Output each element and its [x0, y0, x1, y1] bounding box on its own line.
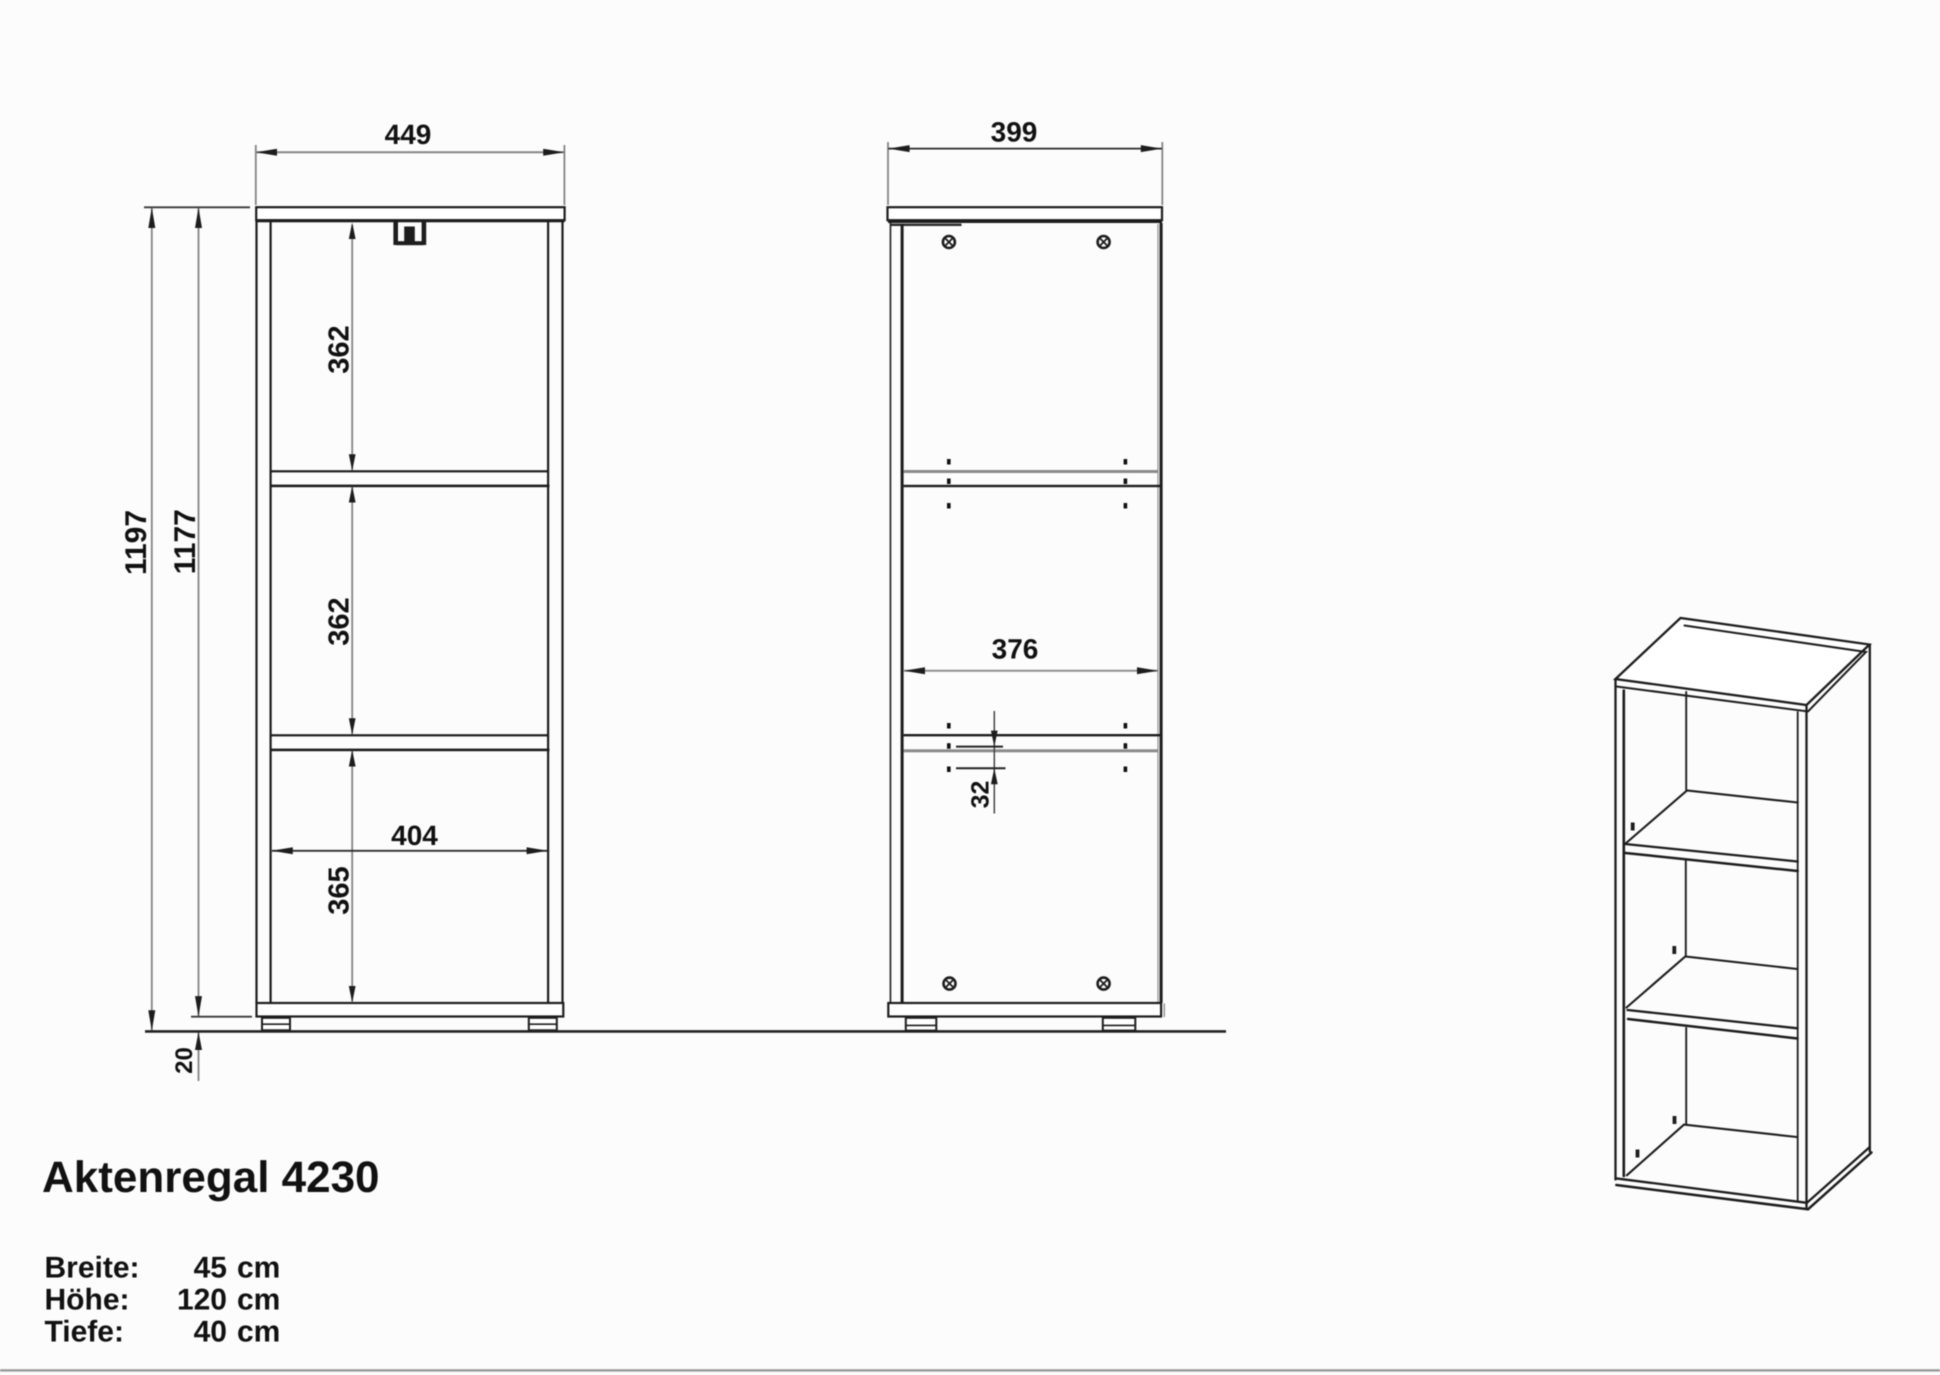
svg-text:404: 404 [391, 820, 438, 851]
svg-text:365: 365 [324, 866, 356, 914]
svg-text:20: 20 [171, 1047, 198, 1074]
svg-text:32: 32 [967, 781, 995, 809]
svg-text:362: 362 [324, 597, 356, 645]
svg-text:Tiefe:: Tiefe: [45, 1316, 124, 1349]
svg-text:cm: cm [237, 1284, 280, 1317]
svg-text:cm: cm [237, 1316, 280, 1349]
svg-text:40: 40 [194, 1316, 227, 1349]
svg-text:1177: 1177 [169, 509, 202, 574]
svg-text:Breite:: Breite: [45, 1252, 140, 1285]
svg-text:Höhe:: Höhe: [45, 1284, 130, 1317]
svg-text:Aktenregal 4230: Aktenregal 4230 [42, 1153, 380, 1202]
svg-text:120: 120 [177, 1284, 227, 1317]
svg-text:376: 376 [992, 634, 1039, 665]
svg-text:cm: cm [237, 1252, 280, 1285]
svg-text:45: 45 [194, 1252, 227, 1285]
svg-text:1197: 1197 [120, 510, 153, 575]
svg-text:399: 399 [991, 117, 1038, 148]
svg-text:449: 449 [385, 119, 432, 150]
svg-text:362: 362 [324, 325, 356, 373]
